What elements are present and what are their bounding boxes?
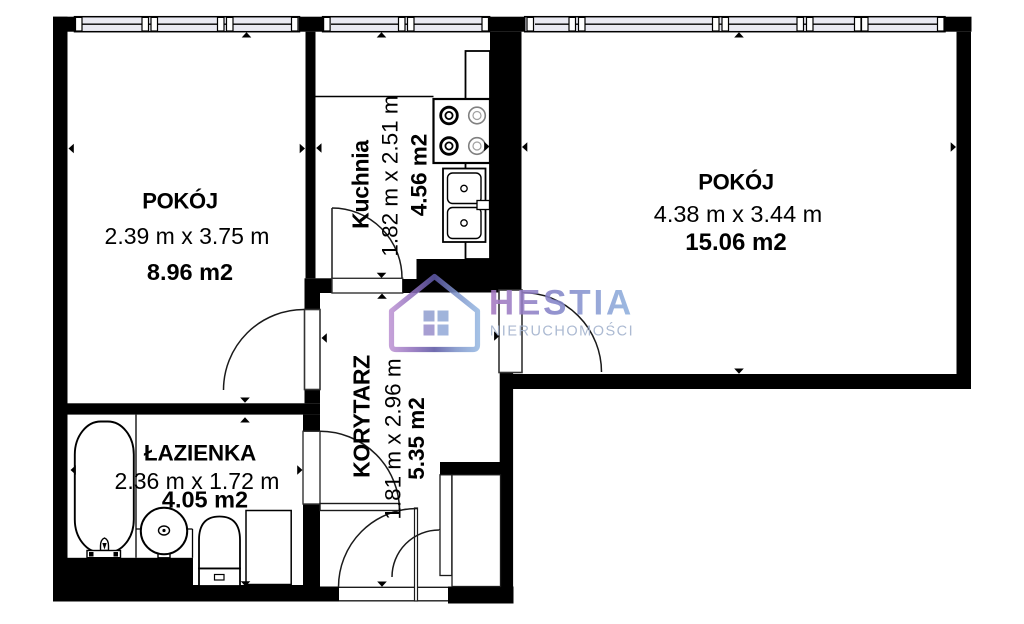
svg-text:15.06 m2: 15.06 m2 xyxy=(685,229,786,256)
svg-text:HESTIA: HESTIA xyxy=(489,284,634,323)
svg-text:1.82 m x 2.51 m: 1.82 m x 2.51 m xyxy=(378,95,403,256)
svg-text:4.56 m2: 4.56 m2 xyxy=(407,134,432,217)
svg-text:4.05 m2: 4.05 m2 xyxy=(162,487,248,513)
svg-text:5.35 m2: 5.35 m2 xyxy=(404,397,429,480)
svg-text:1.81 m x 2.96 m: 1.81 m x 2.96 m xyxy=(381,358,406,519)
svg-text:2.39 m x 3.75 m: 2.39 m x 3.75 m xyxy=(105,223,270,249)
svg-text:POKÓJ: POKÓJ xyxy=(698,170,774,195)
svg-text:NIERUCHOMOŚCI: NIERUCHOMOŚCI xyxy=(490,321,634,339)
svg-text:Kuchnia: Kuchnia xyxy=(348,140,374,229)
svg-text:4.38 m x 3.44 m: 4.38 m x 3.44 m xyxy=(654,201,823,227)
svg-text:8.96 m2: 8.96 m2 xyxy=(147,259,233,285)
svg-text:KORYTARZ: KORYTARZ xyxy=(349,355,375,478)
svg-text:POKÓJ: POKÓJ xyxy=(142,189,218,214)
svg-text:ŁAZIENKA: ŁAZIENKA xyxy=(144,441,256,466)
